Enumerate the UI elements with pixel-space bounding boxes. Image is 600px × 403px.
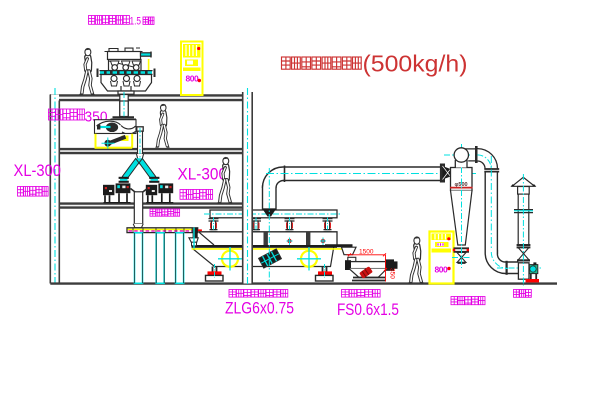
svg-text:800: 800 bbox=[435, 265, 448, 275]
svg-text:XL-300: XL-300 bbox=[14, 162, 62, 180]
svg-text:ZLG6x0.75: ZLG6x0.75 bbox=[225, 299, 294, 318]
svg-text:(500kg/h): (500kg/h) bbox=[363, 51, 468, 77]
svg-text:XL-300: XL-300 bbox=[178, 166, 228, 184]
svg-text:1500: 1500 bbox=[359, 249, 374, 256]
svg-text:1.5: 1.5 bbox=[130, 16, 142, 28]
svg-text:FS0.6x1.5: FS0.6x1.5 bbox=[337, 300, 399, 319]
svg-text:800: 800 bbox=[186, 74, 199, 84]
svg-text:350: 350 bbox=[389, 268, 396, 279]
